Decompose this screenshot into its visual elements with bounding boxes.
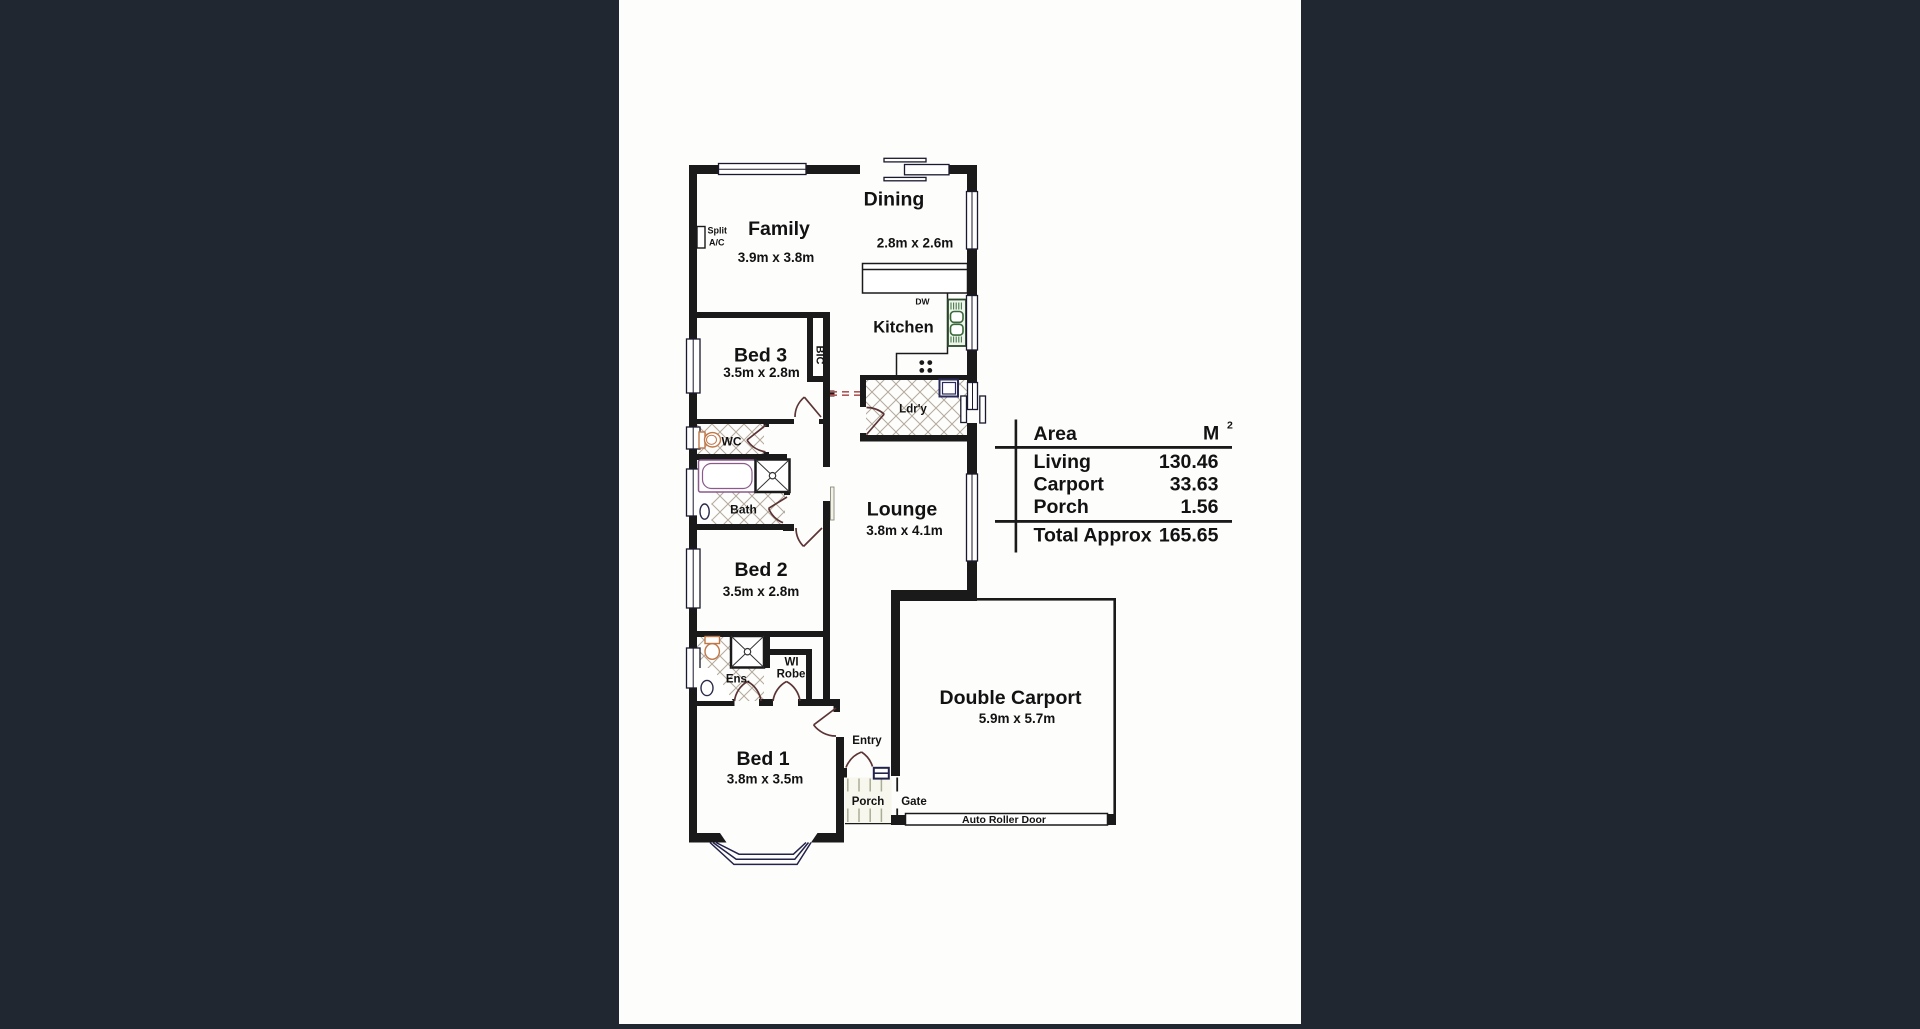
svg-text:Bed 3: Bed 3 xyxy=(734,344,787,366)
svg-text:BIC: BIC xyxy=(814,346,826,365)
svg-text:Ens.: Ens. xyxy=(726,674,750,686)
svg-text:Bed 2: Bed 2 xyxy=(734,559,787,581)
svg-text:Split: Split xyxy=(708,225,728,235)
svg-text:Carport: Carport xyxy=(1034,474,1105,496)
svg-text:Living: Living xyxy=(1034,451,1091,473)
svg-text:Family: Family xyxy=(748,218,810,240)
svg-text:2: 2 xyxy=(1227,420,1233,432)
svg-text:3.9m x 3.8m: 3.9m x 3.8m xyxy=(738,250,815,265)
svg-text:3.5m x 2.8m: 3.5m x 2.8m xyxy=(723,365,800,380)
svg-text:Gate: Gate xyxy=(901,796,927,808)
svg-text:Bath: Bath xyxy=(730,503,757,517)
svg-text:Porch: Porch xyxy=(1034,496,1089,518)
svg-text:3.5m x 2.8m: 3.5m x 2.8m xyxy=(723,584,800,599)
svg-text:DW: DW xyxy=(915,296,930,306)
svg-text:Robe: Robe xyxy=(777,668,806,680)
svg-text:1.56: 1.56 xyxy=(1181,496,1219,518)
svg-text:Lounge: Lounge xyxy=(867,498,938,520)
svg-text:Total Approx: Total Approx xyxy=(1034,525,1152,547)
svg-text:Double Carport: Double Carport xyxy=(940,687,1082,709)
svg-text:Dining: Dining xyxy=(864,189,925,211)
svg-text:3.8m x 4.1m: 3.8m x 4.1m xyxy=(866,523,943,538)
svg-text:3.8m x 3.5m: 3.8m x 3.5m xyxy=(727,772,804,787)
svg-text:Bed 1: Bed 1 xyxy=(736,748,789,770)
svg-text:Kitchen: Kitchen xyxy=(873,319,934,337)
svg-text:130.46: 130.46 xyxy=(1159,451,1219,473)
svg-text:5.9m x 5.7m: 5.9m x 5.7m xyxy=(979,711,1056,726)
svg-text:Entry: Entry xyxy=(852,735,882,747)
svg-text:2.8m x 2.6m: 2.8m x 2.6m xyxy=(877,236,954,251)
svg-text:33.63: 33.63 xyxy=(1170,474,1219,496)
svg-text:Auto Roller Door: Auto Roller Door xyxy=(962,814,1046,826)
svg-text:WI: WI xyxy=(784,657,798,669)
svg-text:Ldr'y: Ldr'y xyxy=(899,404,927,416)
svg-text:Area: Area xyxy=(1034,423,1078,445)
svg-text:A/C: A/C xyxy=(709,237,725,247)
svg-text:WC: WC xyxy=(722,435,742,449)
svg-text:Porch: Porch xyxy=(852,796,885,808)
svg-text:M: M xyxy=(1203,423,1219,445)
svg-text:165.65: 165.65 xyxy=(1159,525,1219,547)
